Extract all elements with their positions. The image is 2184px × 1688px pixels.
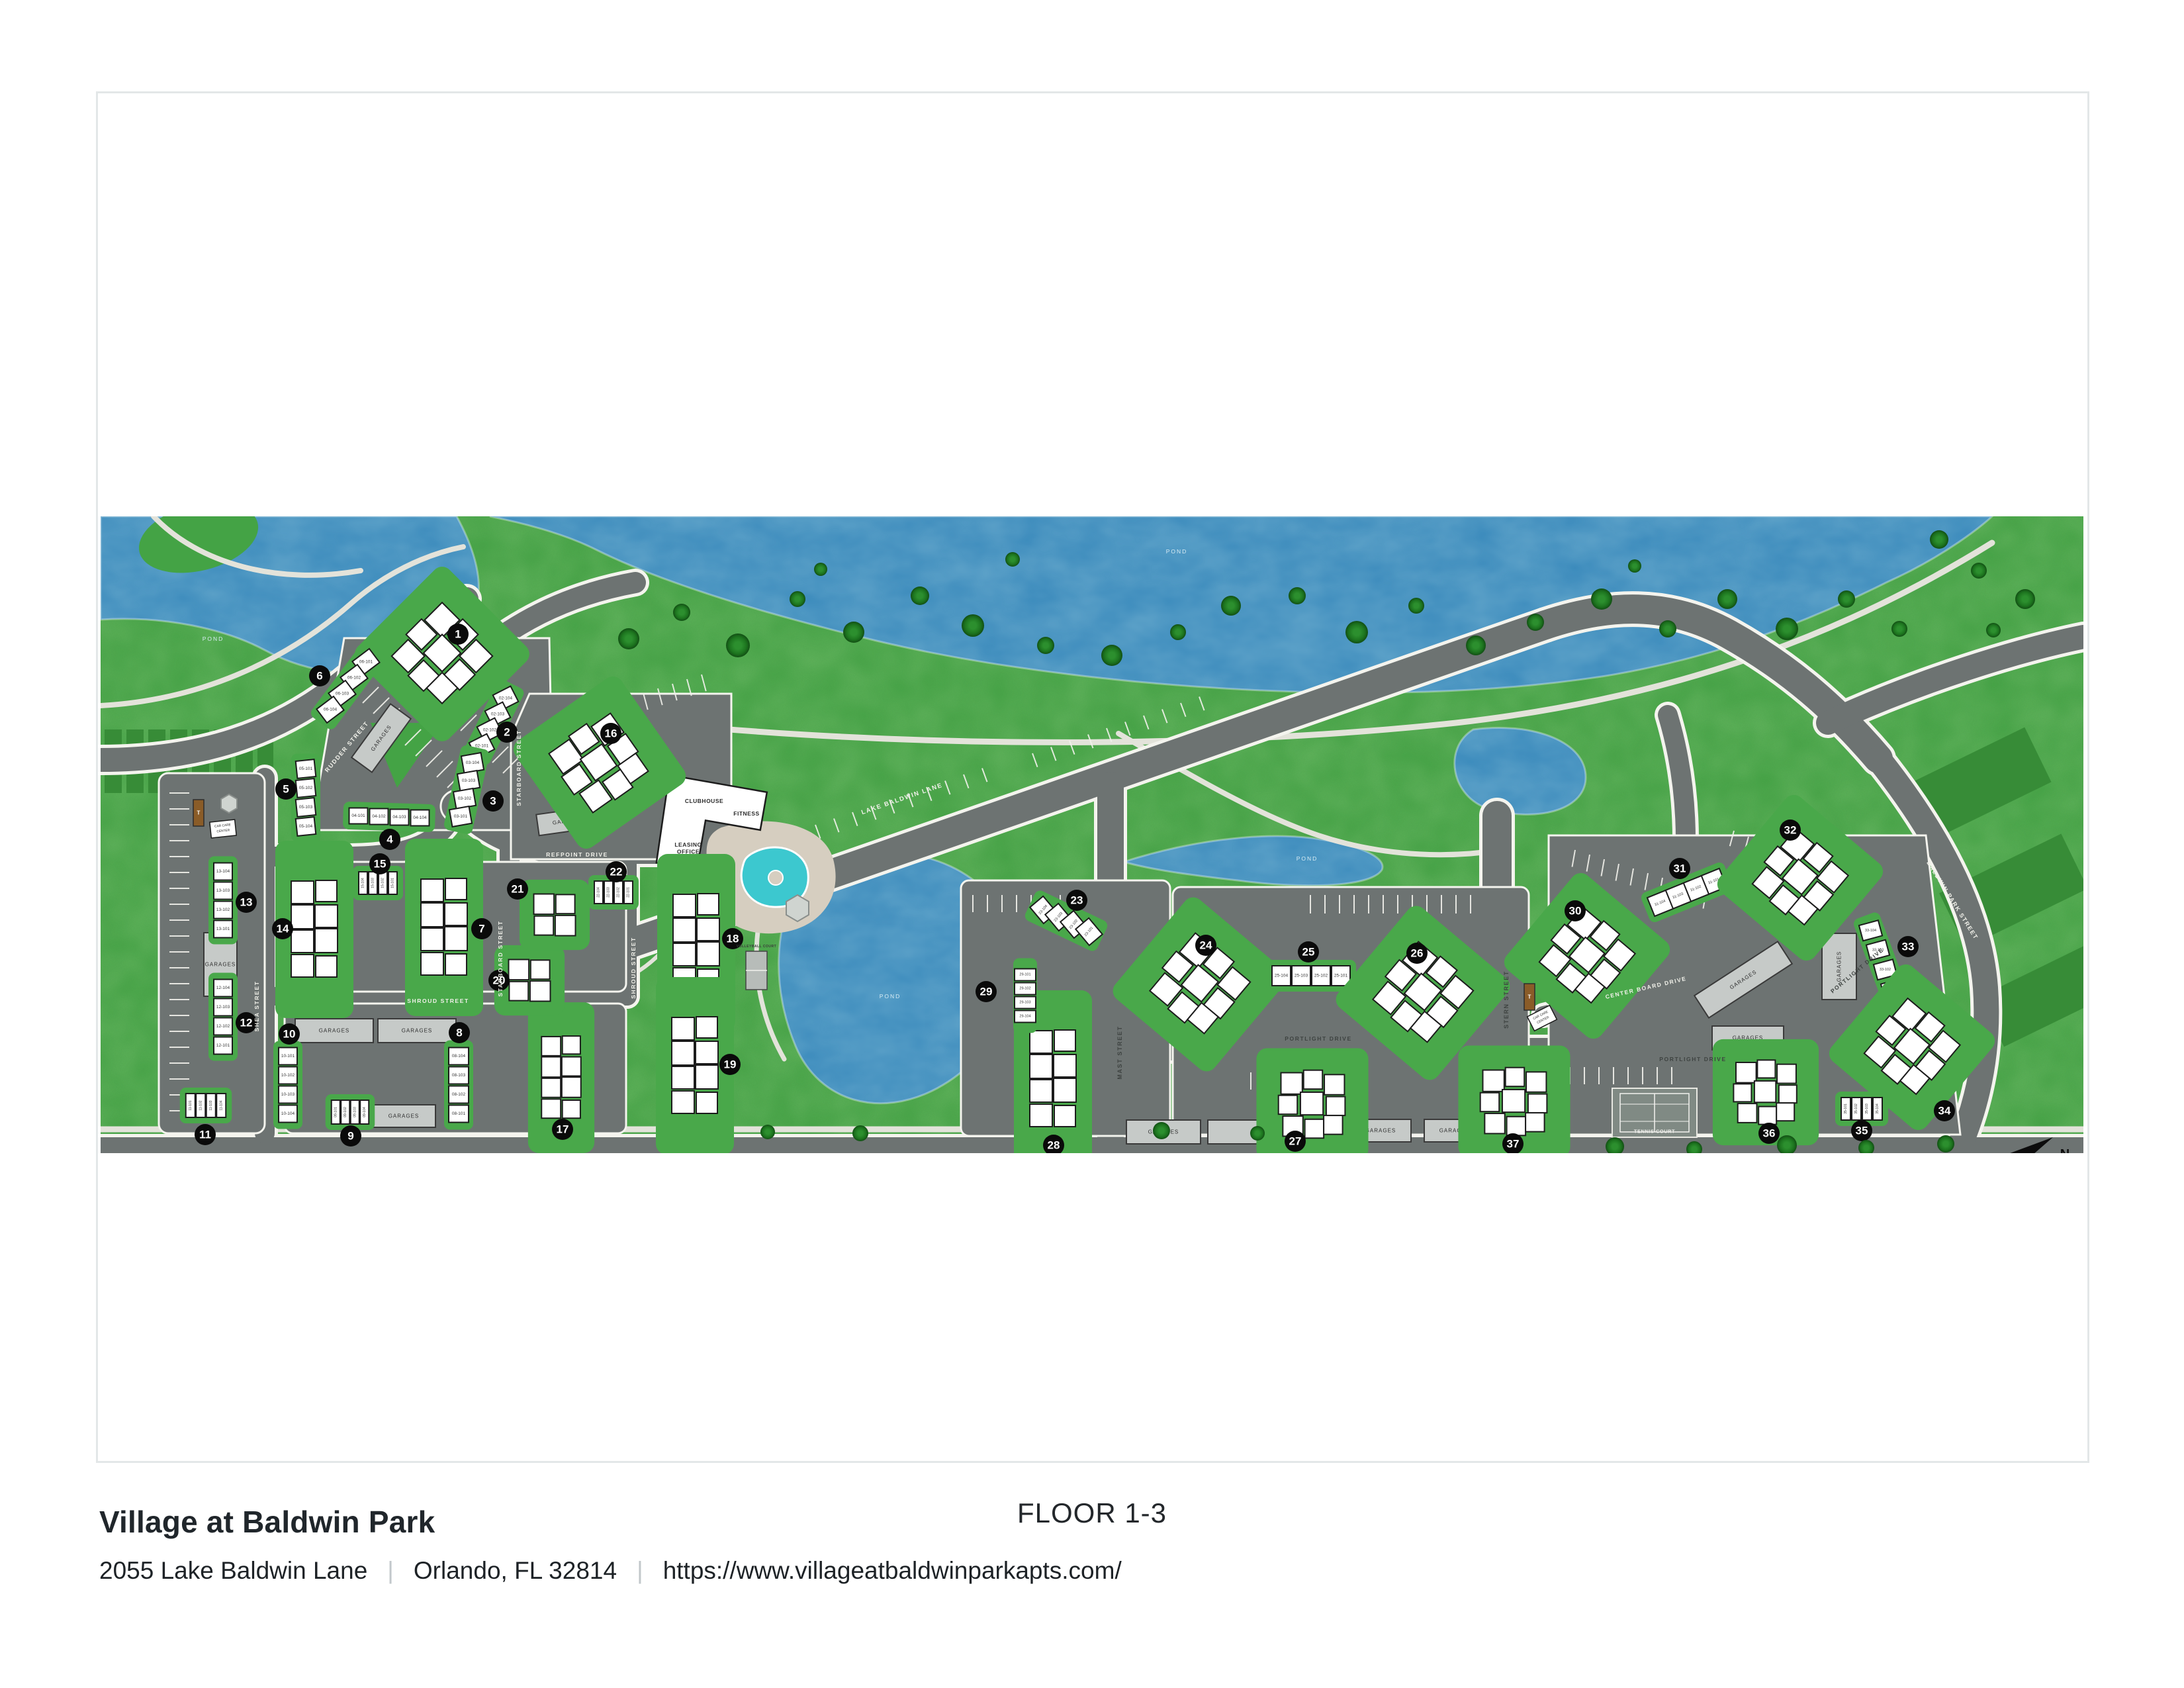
garage-label: GARAGES [205,962,236,968]
unit-label: 11-102 [199,1100,203,1110]
parking-stalls [169,793,189,1111]
unit-label: 11-101 [189,1100,193,1110]
address-separator: | [387,1557,394,1585]
unit-label: 13-102 [216,908,230,912]
building-number: 1 [455,628,461,641]
unit-label: 15-104 [361,878,365,888]
unit-label: 08-104 [452,1054,466,1058]
building-number: 12 [240,1017,253,1029]
unit-label: 06-102 [347,676,361,680]
building-number: 10 [283,1028,296,1041]
building-number: 27 [1289,1135,1302,1148]
building-36: 36 [1713,1039,1819,1145]
building-number: 36 [1763,1127,1776,1140]
unit-label: 12-104 [216,986,230,990]
street-label: MAST STREET [1116,1025,1123,1079]
street-label: SHEA STREET [253,981,260,1032]
unit-label: 09-103 [353,1107,357,1117]
unit-label: 22-101 [627,887,631,898]
gazebo [221,794,237,813]
unit-label: 35-104 [1876,1103,1880,1114]
unit-label: 15-101 [391,878,395,888]
street-label: PORTLIGHT DRIVE [1659,1056,1726,1062]
unit-label: 04-101 [351,814,365,818]
unit-label: 10-102 [281,1073,295,1078]
unit-label: 08-103 [452,1073,466,1078]
unit-label: 04-102 [372,814,386,819]
fitness-label: FITNESS [733,810,759,817]
pool-island [768,870,783,885]
pond-label: POND [1297,855,1318,862]
building-number: 23 [1071,894,1083,907]
unit-label: 25-104 [1275,974,1289,978]
unit-label: 02-104 [499,696,513,701]
unit-label: 15-102 [381,878,385,888]
building-19: 19 [656,977,741,1153]
tree [1930,530,1948,549]
street-label: STERN STREET [1503,970,1510,1029]
tree [1153,1122,1170,1139]
tree [760,1125,775,1139]
tree [1717,589,1737,609]
unit-label: 05-102 [299,786,313,790]
building-number: 17 [557,1123,569,1136]
tree [2015,589,2035,609]
garage-label: GARAGES [388,1113,420,1119]
tree [1170,624,1186,640]
unit-label: 08-102 [452,1092,466,1097]
tree [814,563,827,576]
address-street: 2055 Lake Baldwin Lane [99,1557,367,1585]
unit-label: 22-102 [617,887,621,898]
clubhouse-label: CLUBHOUSE [685,798,723,804]
unit-label: 29-102 [1019,987,1030,991]
unit-label: 09-101 [334,1107,338,1117]
unit-label: 33-102 [1880,968,1891,972]
building-27: 27 [1256,1048,1368,1153]
tree [1101,645,1122,666]
unit-label: 08-101 [452,1111,466,1116]
unit-label: 12-101 [216,1043,230,1048]
unit-label: 22-103 [607,887,611,898]
building-number: 21 [512,883,524,896]
tree [1250,1126,1265,1141]
building-7: 7 [405,839,492,1016]
building-number: 15 [374,858,387,870]
svg-text:T: T [1528,994,1531,1000]
building-number: 9 [347,1130,353,1143]
north-label: N [2060,1147,2070,1153]
property-url[interactable]: https://www.villageatbaldwinparkapts.com… [663,1557,1122,1585]
garage-building: GARAGES [372,1105,435,1127]
building-number: 33 [1902,941,1915,953]
entry-sign: T [1524,984,1535,1010]
garage-building: GARAGES [378,1019,456,1043]
unit-label: 09-104 [363,1107,367,1117]
unit-label: 05-104 [299,824,313,829]
tree [1838,590,1855,608]
floor-label: FLOOR 1-3 [0,1497,2184,1529]
unit-label: 05-101 [299,767,313,771]
building-number: 24 [1200,939,1212,952]
tree [618,628,639,649]
tree [962,614,984,637]
garage-building: GARAGES [295,1019,373,1043]
unit-label: 35-101 [1844,1103,1848,1114]
building-number: 18 [727,933,739,945]
unit-label: 04-104 [413,816,427,820]
unit-label: 10-101 [281,1054,295,1058]
unit-label: 12-103 [216,1005,230,1009]
unit-label: 33-104 [1865,929,1876,933]
building-number: 30 [1569,905,1582,917]
unit-label: 03-101 [454,814,468,819]
unit-label: 25-103 [1295,974,1308,978]
tree [852,1125,868,1141]
unit-label: 02-101 [475,744,489,749]
property-address: 2055 Lake Baldwin Lane | Orlando, FL 328… [99,1557,1122,1585]
unit-label: 03-103 [462,778,476,783]
unit-label: 13-101 [216,927,230,931]
building-17: 17 [528,1002,594,1153]
street-label: SHROUD STREET [630,937,637,999]
unit-label: 03-102 [458,796,472,801]
unit-label: 06-104 [324,708,338,712]
unit-label: 35-102 [1854,1103,1858,1114]
garage-label: GARAGES [1365,1128,1396,1134]
tennis-court-label: TENNIS COURT [1634,1129,1675,1135]
building-number: 6 [316,670,322,682]
site-map: GARAGESGARAGESGARAGESGARAGESGARAGESGARAG… [101,516,2083,1153]
unit-label: 02-102 [483,728,497,733]
unit-label: 29-104 [1019,1015,1030,1019]
unit-label: 25-102 [1314,974,1328,978]
unit-label: 03-104 [466,761,480,765]
tree [1986,623,2001,637]
building-number: 37 [1507,1138,1520,1150]
brochure-page: GARAGESGARAGESGARAGESGARAGESGARAGESGARAG… [0,0,2184,1688]
building-number: 32 [1784,824,1797,837]
street-label: SHROUD STREET [407,998,469,1004]
building-number: 35 [1856,1125,1868,1137]
building-number: 3 [490,795,496,808]
unit-label: 15-103 [371,878,375,888]
building-number: 14 [277,923,289,935]
unit-label: 10-103 [281,1092,295,1097]
building-number: 4 [387,833,393,846]
building-number: 25 [1302,946,1315,959]
tree [1891,621,1907,637]
unit-label: 11-104 [219,1100,223,1110]
unit-label: 13-103 [216,888,230,893]
unit-label: 02-103 [491,712,505,717]
unit-label: 06-103 [336,692,349,696]
tree [1628,559,1641,573]
unit-label: 25-101 [1334,974,1348,978]
building-number: 11 [199,1129,211,1141]
tree [1591,588,1612,610]
tree [1776,618,1798,640]
building-number: 8 [456,1027,462,1039]
address-separator: | [637,1557,643,1585]
building-number: 28 [1048,1139,1060,1152]
unit-label: 29-103 [1019,1001,1030,1005]
gazebo [786,895,809,921]
unit-label: 09-102 [343,1107,347,1117]
tree [911,586,929,605]
tree [673,604,690,621]
unit-label: 35-103 [1865,1103,1869,1114]
tree [1345,621,1368,643]
unit-label: 12-102 [216,1024,230,1029]
street-label: STARBOARD STREET [516,729,522,806]
tree [1221,596,1241,616]
building-number: 31 [1674,863,1686,875]
building-number: 16 [605,727,617,740]
unit-label: 10-104 [281,1111,295,1116]
unit-label: 06-101 [359,660,373,665]
tree [1527,614,1544,631]
garage-label: GARAGES [1837,951,1843,982]
building-14: 14 [272,841,353,1018]
tree [1659,620,1676,637]
building-number: 13 [240,896,253,909]
unit-label: 13-104 [216,869,230,874]
building-number: 34 [1938,1105,1951,1117]
car-care-center: CAR CARECENTER [210,820,236,838]
tree [1037,637,1054,654]
building-number: 2 [504,726,510,739]
building-number: 22 [610,866,623,878]
leasing-office-label: LEASING [674,841,702,848]
leasing-office-label: OFFICE [677,849,700,855]
building-number: 26 [1411,947,1424,960]
building-number: 7 [478,923,484,935]
tree [1408,598,1424,614]
garage-label: GARAGES [319,1028,350,1034]
tree [1937,1135,1954,1152]
unit-label: 29-101 [1019,973,1030,977]
tree [1005,552,1020,567]
unit-label: 05-103 [299,805,313,810]
pond-label: POND [203,635,224,642]
tree [843,622,864,643]
tree [1289,587,1306,604]
address-city: Orlando, FL 32814 [414,1557,617,1585]
building-number: 5 [283,783,289,796]
street-label: STARBOARD STREET [497,920,504,996]
tree [1971,563,1987,579]
volleyball-court-label: VOLLEYBALL COURT [737,945,776,949]
pond-label: POND [880,993,901,1000]
street-label: PORTLIGHT DRIVE [1285,1035,1351,1042]
unit-label: 22-104 [597,887,601,898]
tree [1466,635,1486,655]
unit-label: 11-103 [209,1100,213,1110]
unit-label: 04-103 [392,815,406,820]
building-number: 19 [724,1058,737,1071]
pond-label: POND [1166,548,1188,555]
entry-sign: T [193,800,204,826]
tree [726,633,750,657]
building-37: 37 [1458,1045,1570,1153]
svg-text:T: T [197,810,201,816]
street-label: REFPOINT DRIVE [546,851,608,858]
building-number: 29 [980,986,993,998]
garage-label: GARAGES [402,1028,433,1034]
tree [790,591,805,607]
